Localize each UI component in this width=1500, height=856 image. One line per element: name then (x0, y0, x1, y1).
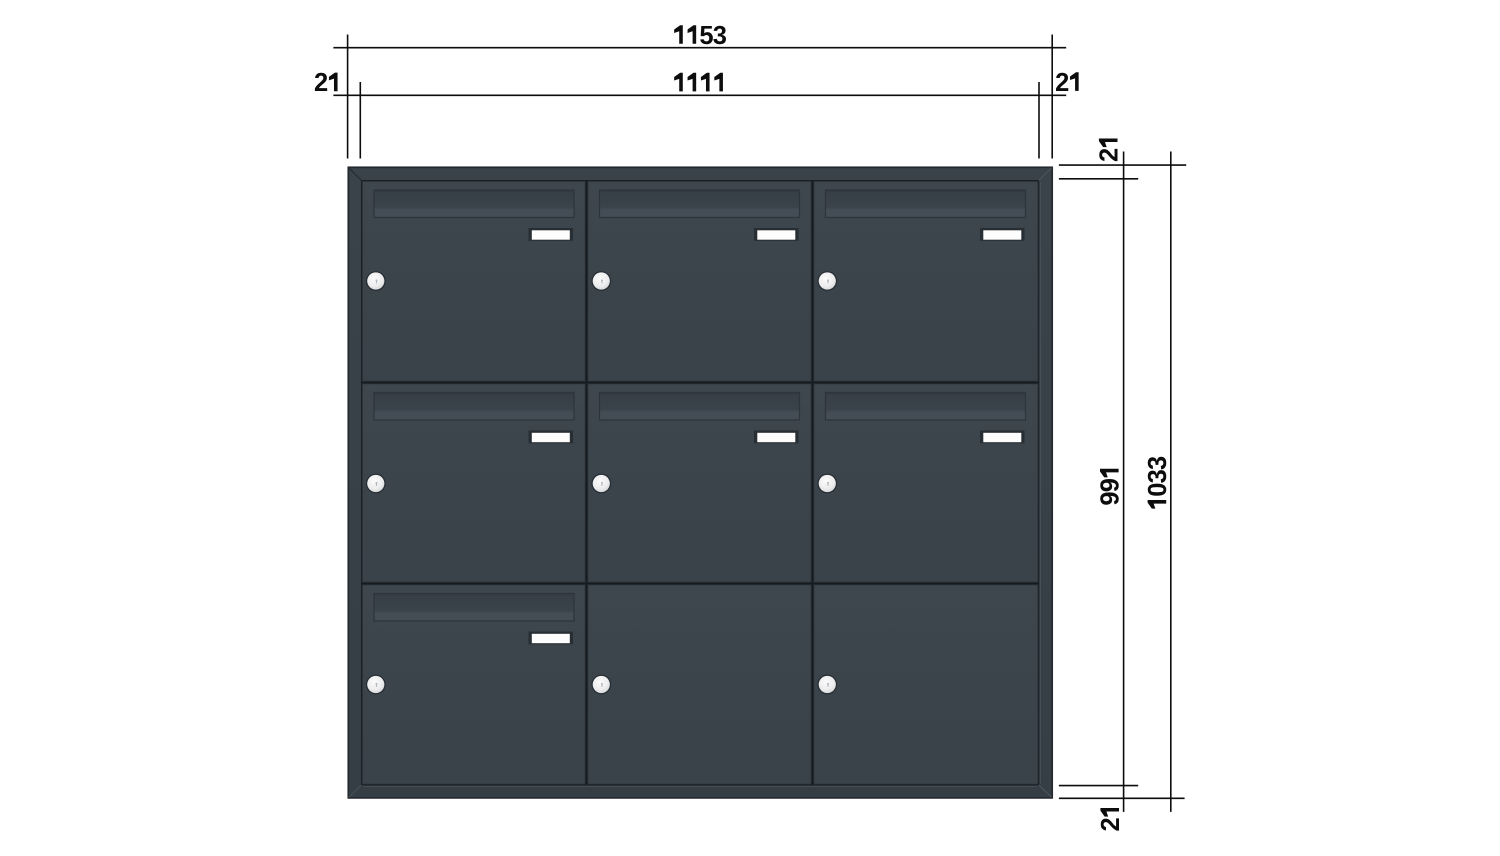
svg-text:3: 3 (713, 22, 727, 50)
svg-text:2: 2 (1097, 817, 1125, 831)
svg-text:5: 5 (699, 22, 713, 50)
svg-text:0: 0 (1144, 483, 1172, 497)
svg-text:2: 2 (1096, 148, 1124, 162)
svg-text:3: 3 (1144, 469, 1172, 483)
svg-text:3: 3 (1144, 456, 1172, 470)
svg-text:2: 2 (314, 69, 328, 97)
svg-text:9: 9 (1097, 491, 1125, 505)
svg-text:2: 2 (1055, 69, 1069, 97)
svg-text:9: 9 (1097, 478, 1125, 492)
